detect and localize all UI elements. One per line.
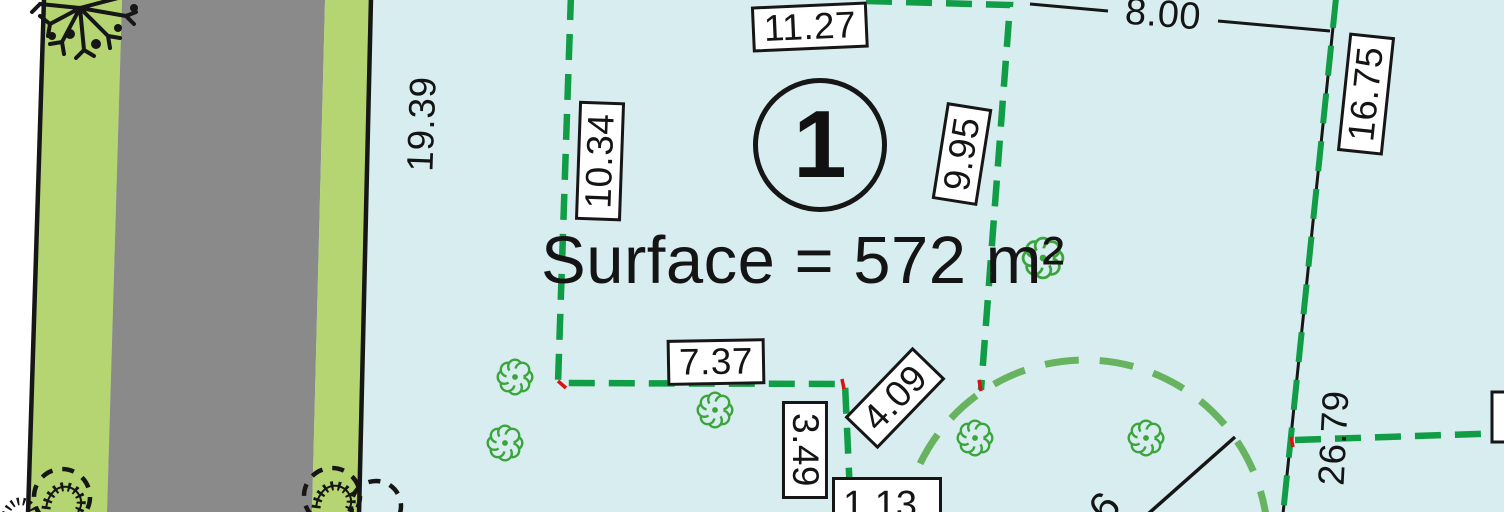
dimension-label-top: 11.27: [751, 2, 869, 53]
dimension-label-boundary-lower: 26.79: [1312, 389, 1357, 486]
road: [107, 0, 325, 512]
cadastral-plan: 1 Surface = 572 m² 11.27 8.00 19.39 10.3…: [0, 0, 1504, 512]
dimension-label-bottom: 7.37: [667, 338, 766, 386]
flower-icon: [1129, 421, 1164, 456]
dimension-label-lower-left: 3.49: [782, 401, 828, 499]
leader-line: [1148, 437, 1235, 512]
flower-icon: [498, 360, 533, 395]
parcel-number: 1: [793, 90, 846, 200]
dimension-label-left-outer: 19.39: [400, 76, 443, 172]
parcel-number-circle: 1: [753, 78, 887, 212]
dimension-label-lower-small: 1.13: [832, 477, 942, 512]
dimension-label-top-right: 8.00: [1124, 0, 1203, 38]
partial-label-box: [1492, 392, 1504, 442]
flower-icon: [488, 426, 523, 461]
flower-icon: [698, 393, 733, 428]
surface-label: Surface = 572 m²: [541, 222, 1065, 299]
flower-icon: [958, 421, 993, 456]
dimension-label-left-inner: 10.34: [575, 101, 625, 222]
